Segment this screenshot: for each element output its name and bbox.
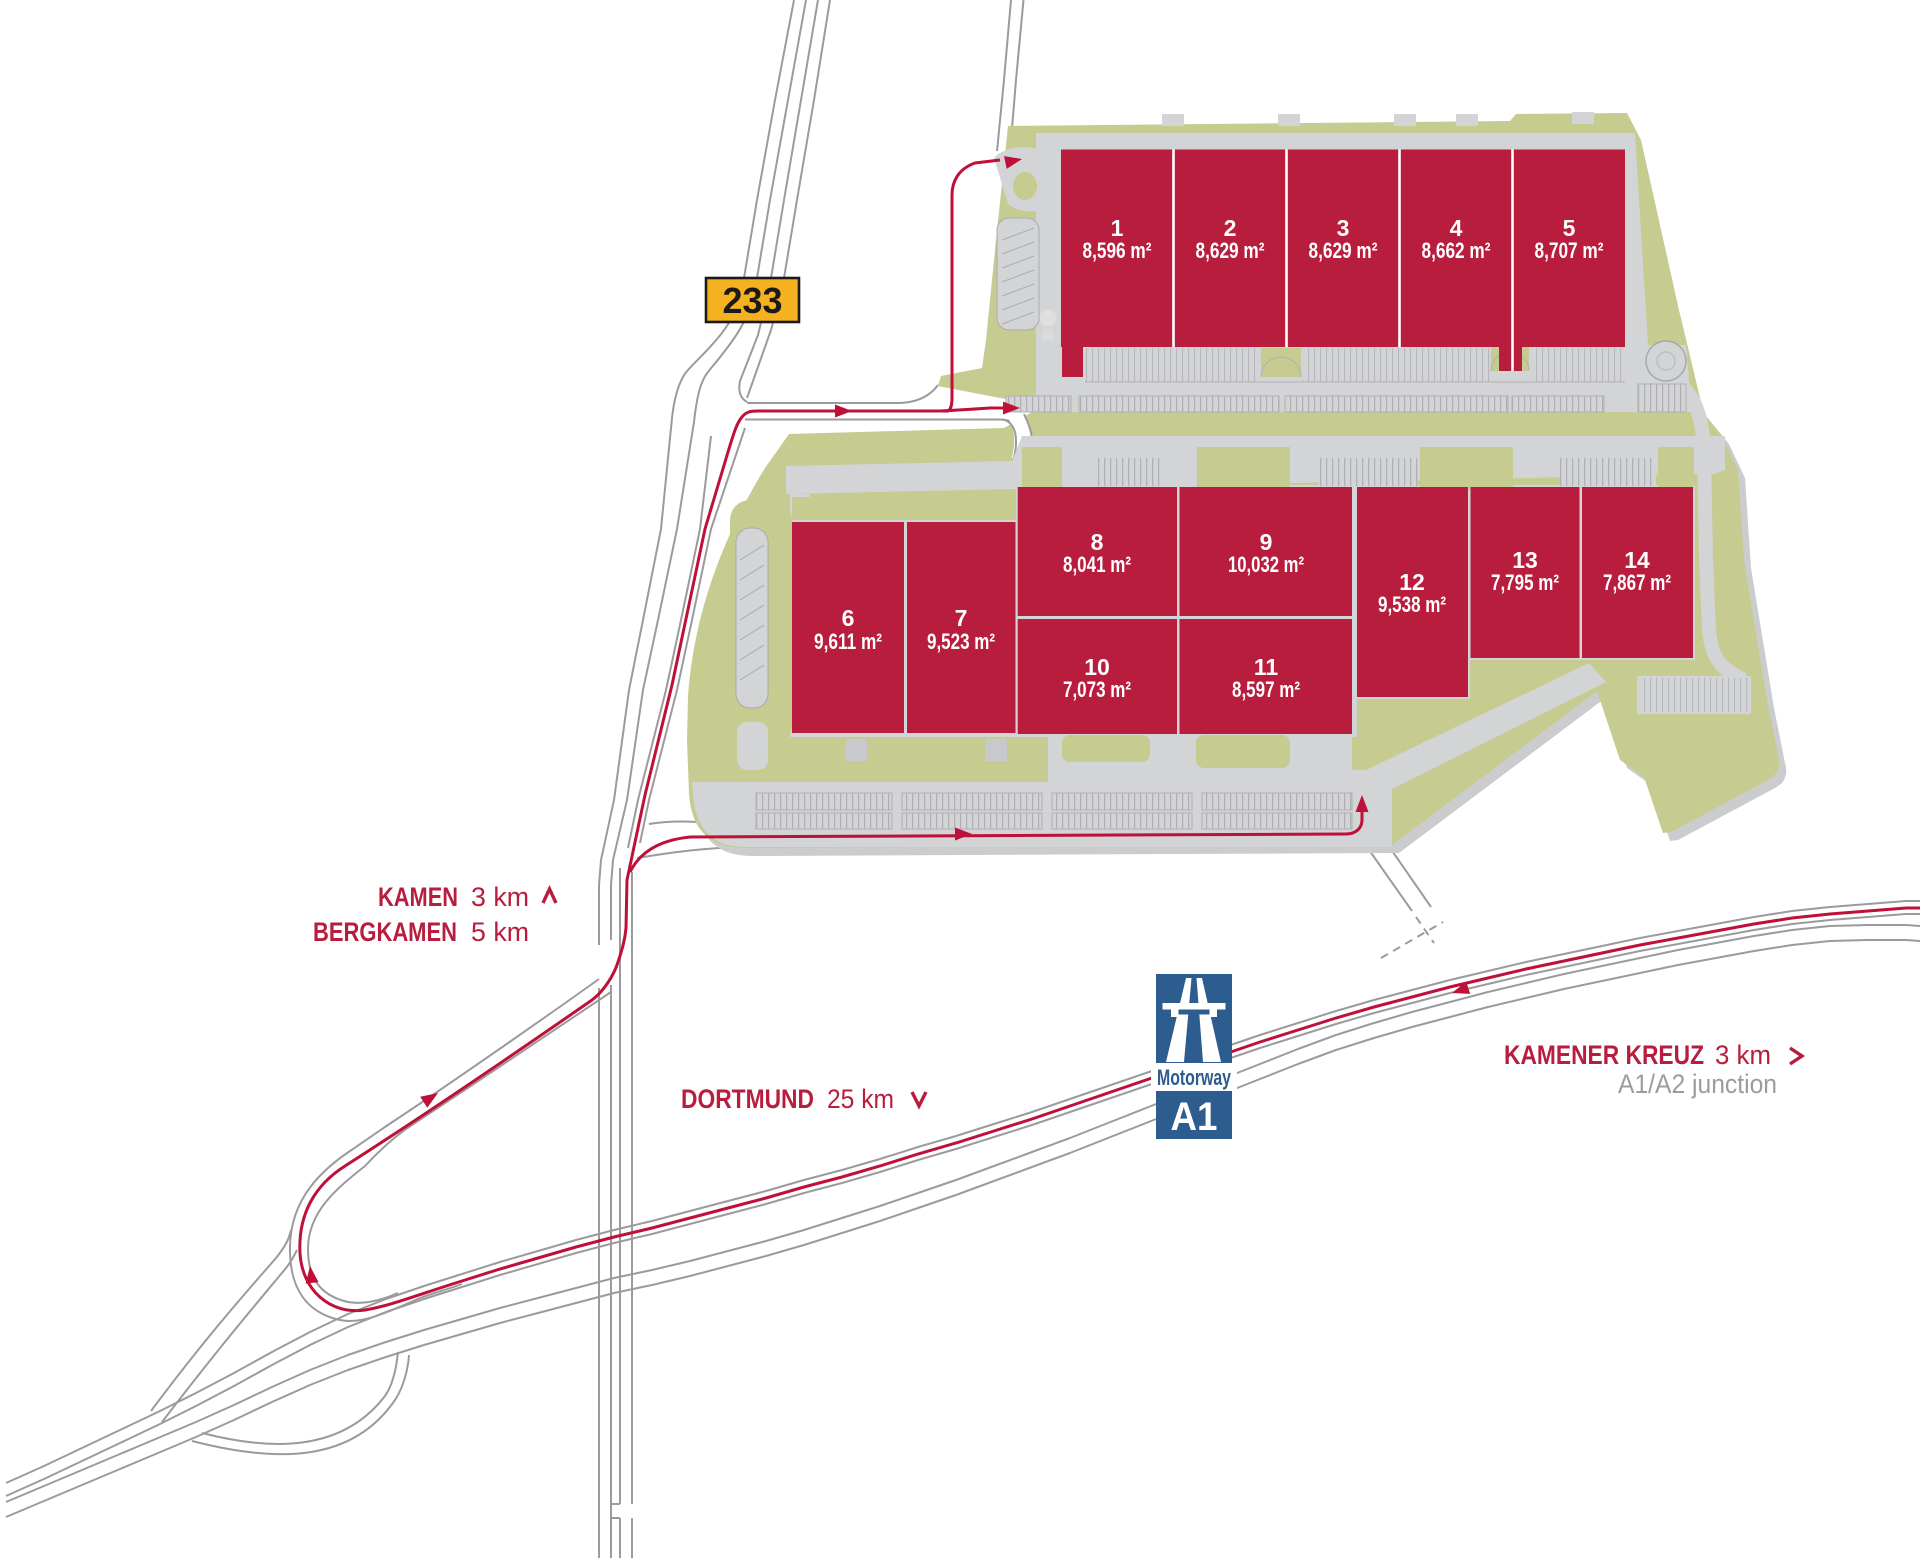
svg-text:KAMENER KREUZ: KAMENER KREUZ xyxy=(1504,1040,1704,1070)
svg-text:8,597 m²: 8,597 m² xyxy=(1232,677,1300,702)
svg-text:A1: A1 xyxy=(1171,1095,1218,1139)
svg-text:7,867 m²: 7,867 m² xyxy=(1603,570,1671,595)
svg-text:A1/A2 junction: A1/A2 junction xyxy=(1618,1069,1777,1099)
svg-text:3 km: 3 km xyxy=(471,882,529,912)
svg-text:8,707 m²: 8,707 m² xyxy=(1535,238,1604,263)
svg-text:BERGKAMEN: BERGKAMEN xyxy=(313,917,457,947)
svg-text:7: 7 xyxy=(955,605,968,631)
svg-text:8,596 m²: 8,596 m² xyxy=(1083,238,1152,263)
svg-text:7,073 m²: 7,073 m² xyxy=(1063,677,1131,702)
svg-text:9,538 m²: 9,538 m² xyxy=(1378,592,1446,617)
svg-text:8,662 m²: 8,662 m² xyxy=(1422,238,1491,263)
svg-text:6: 6 xyxy=(842,605,855,631)
svg-text:10,032 m²: 10,032 m² xyxy=(1228,552,1304,577)
svg-text:8,041 m²: 8,041 m² xyxy=(1063,552,1131,577)
svg-text:233: 233 xyxy=(722,280,782,321)
svg-text:8,629 m²: 8,629 m² xyxy=(1309,238,1378,263)
svg-text:3 km: 3 km xyxy=(1715,1040,1771,1070)
svg-text:5 km: 5 km xyxy=(471,917,529,947)
svg-text:DORTMUND: DORTMUND xyxy=(681,1084,814,1114)
svg-text:9,523 m²: 9,523 m² xyxy=(927,629,995,654)
svg-text:7,795 m²: 7,795 m² xyxy=(1491,570,1559,595)
svg-text:Motorway: Motorway xyxy=(1157,1065,1232,1090)
svg-text:25 km: 25 km xyxy=(827,1084,894,1114)
svg-text:KAMEN: KAMEN xyxy=(378,882,458,912)
svg-text:9,611 m²: 9,611 m² xyxy=(814,629,882,654)
svg-text:8,629 m²: 8,629 m² xyxy=(1196,238,1265,263)
